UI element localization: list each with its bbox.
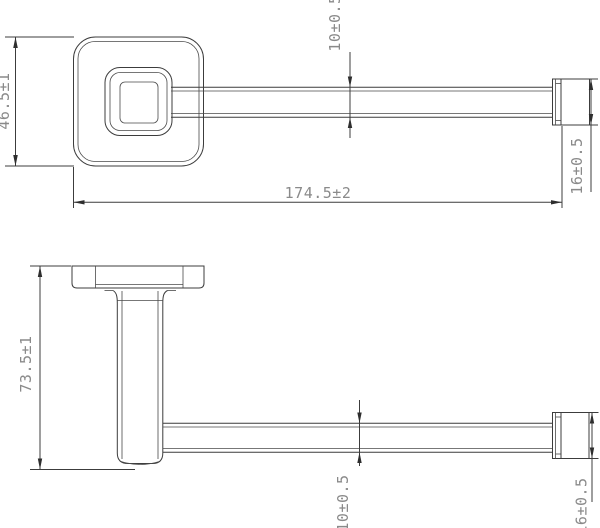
end-cap-body — [561, 413, 589, 459]
top-view: 46.5±1 10±0.5 174.5±2 16±0.5 — [0, 0, 598, 208]
dim-plate-size: 46.5±1 — [0, 37, 74, 166]
boss-outer-contour — [105, 68, 172, 136]
post-outline — [113, 291, 168, 464]
mount-plate-side — [72, 266, 204, 288]
plate-inner-contour — [78, 42, 199, 162]
mount-boss-plan — [105, 68, 172, 136]
dim-label-overall-depth: 73.5±1 — [17, 335, 35, 392]
arrowhead-right — [551, 200, 562, 204]
end-cap-flange — [553, 413, 562, 459]
arrowhead-up — [357, 452, 361, 463]
end-cap-side — [553, 413, 590, 459]
arrowhead-up — [590, 413, 594, 424]
dim-end-cap-side: 16±0.5 — [573, 413, 599, 528]
end-cap-flange — [553, 79, 562, 125]
mount-plate-plan — [74, 37, 204, 166]
boss-mid-contour — [110, 73, 167, 131]
dim-label-plate-size: 46.5±1 — [0, 72, 13, 129]
arrowhead-down — [38, 459, 42, 470]
drawing-canvas: 46.5±1 10±0.5 174.5±2 16±0.5 — [0, 0, 600, 528]
arrowhead-up — [13, 37, 18, 48]
dim-label-end-cap: 16±0.5 — [568, 137, 586, 194]
arrowhead-up — [348, 117, 352, 128]
bar-side — [163, 423, 553, 452]
dim-overall-length: 174.5±2 — [74, 126, 563, 208]
boss-face-contour — [120, 82, 158, 123]
plate-outer-contour — [74, 37, 204, 166]
arrowhead-down — [348, 77, 352, 88]
arrowhead-up — [38, 266, 42, 277]
bar-plan — [171, 87, 553, 117]
arrowhead-down — [13, 155, 18, 166]
dim-label-overall-length: 174.5±2 — [285, 184, 352, 202]
arrowhead-down — [357, 413, 361, 424]
arrowhead-left — [74, 200, 85, 204]
dim-label-end-cap: 16±0.5 — [573, 477, 591, 528]
end-cap-plan — [553, 79, 590, 125]
dim-end-cap-top: 16±0.5 — [568, 79, 598, 195]
technical-drawing: 46.5±1 10±0.5 174.5±2 16±0.5 — [0, 0, 600, 528]
end-cap-body — [561, 79, 590, 125]
arrowhead-down — [590, 448, 594, 459]
dim-label-bar-thickness: 10±0.5 — [326, 0, 344, 52]
dim-bar-thickness-side: 10±0.5 — [334, 400, 362, 528]
side-view: 73.5±1 10±0.5 16±0.5 — [17, 266, 599, 528]
dim-label-bar-thickness: 10±0.5 — [334, 474, 352, 528]
post-side — [105, 291, 177, 465]
